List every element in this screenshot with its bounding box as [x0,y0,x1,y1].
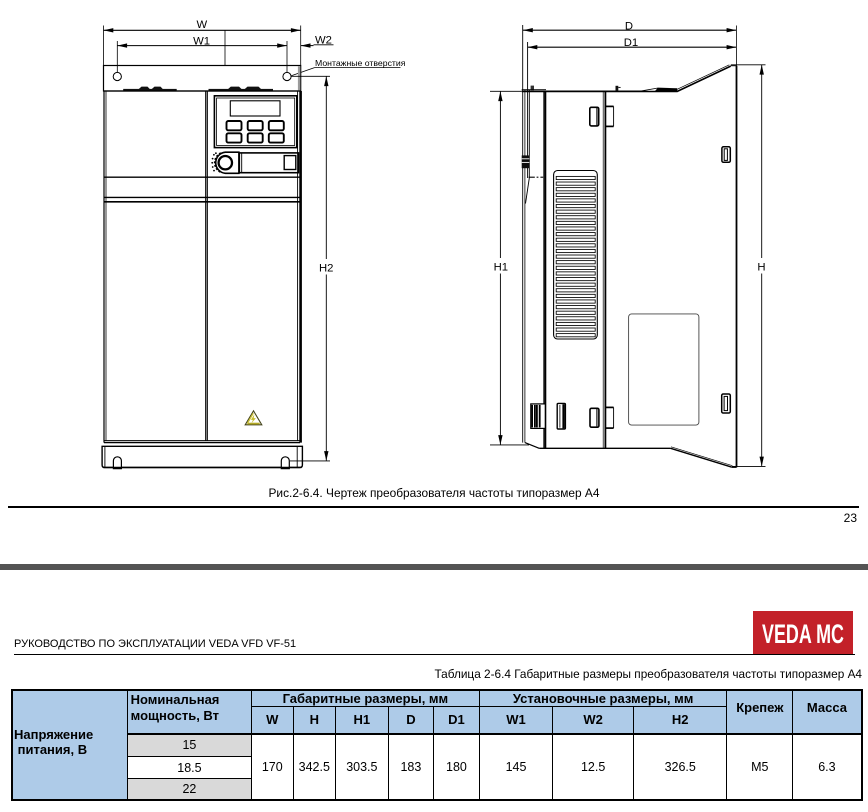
svg-text:H2: H2 [319,263,333,275]
svg-text:VEDA MC: VEDA MC [762,619,844,649]
svg-text:H: H [757,262,765,274]
svg-text:W: W [196,19,207,31]
svg-text:H1: H1 [494,262,508,274]
svg-text:D1: D1 [624,37,638,49]
svg-text:Монтажные отверстия: Монтажные отверстия [315,58,406,68]
svg-text:D: D [625,21,633,33]
svg-text:W1: W1 [193,35,210,47]
svg-text:W2: W2 [315,34,332,46]
